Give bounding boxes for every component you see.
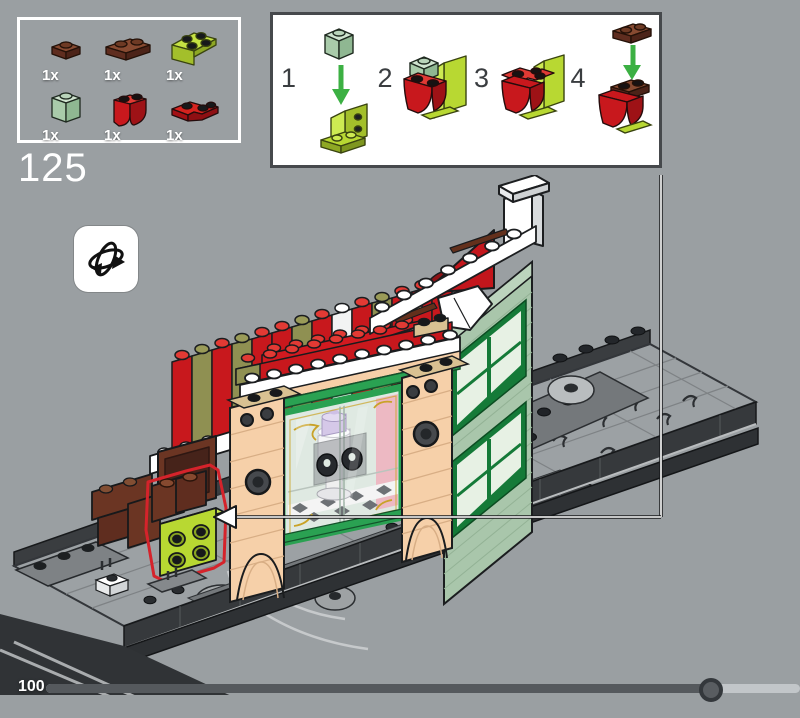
turntable-disc	[548, 376, 594, 404]
parts-list-box: 1x 1x	[17, 17, 241, 143]
substep-1-diagram	[295, 19, 373, 161]
sage-brick-1x1-icon	[36, 84, 94, 130]
substep-1: 1	[273, 15, 370, 165]
part-qty: 1x	[42, 127, 59, 144]
brown-plate-1x2-icon	[98, 24, 156, 68]
substep-number: 2	[378, 63, 393, 94]
part-sage-brick-1x1: 1x	[40, 82, 102, 142]
substeps-panel: 1	[270, 12, 662, 168]
substep-number: 3	[474, 63, 489, 94]
part-brown-plate-1x2: 1x	[102, 22, 164, 82]
progress-step-label: 100	[18, 678, 45, 696]
red-curved-brick-icon	[98, 84, 156, 130]
part-brown-plate-1x1: 1x	[40, 22, 102, 82]
part-red-curved-brick: 1x	[102, 82, 164, 142]
progress-track[interactable]	[46, 684, 800, 693]
instruction-page: 1x 1x	[0, 0, 800, 718]
substep-2: 2	[370, 15, 467, 165]
substep-2-diagram	[392, 19, 472, 161]
substep-4: 4	[563, 15, 660, 165]
model-illustration	[0, 175, 800, 695]
progress-fill	[46, 684, 711, 693]
part-lime-bracket: 1x	[164, 22, 226, 82]
brown-plate-1x1-icon	[36, 24, 94, 68]
storefront	[282, 387, 402, 543]
part-qty: 1x	[104, 127, 121, 144]
place-arrow	[332, 65, 350, 105]
place-arrow	[623, 45, 641, 80]
substep-3-diagram	[488, 19, 568, 161]
lime-bracket-icon	[160, 24, 220, 70]
substep-number: 4	[571, 63, 586, 94]
substep-4-diagram	[585, 19, 671, 161]
substep-number: 1	[281, 63, 296, 94]
red-corner-plate-icon	[160, 84, 220, 130]
part-red-corner-plate: 1x	[164, 82, 226, 142]
progress-thumb[interactable]	[699, 678, 723, 702]
parts-grid: 1x 1x	[20, 20, 238, 142]
part-qty: 1x	[166, 127, 183, 144]
substep-3: 3	[466, 15, 563, 165]
